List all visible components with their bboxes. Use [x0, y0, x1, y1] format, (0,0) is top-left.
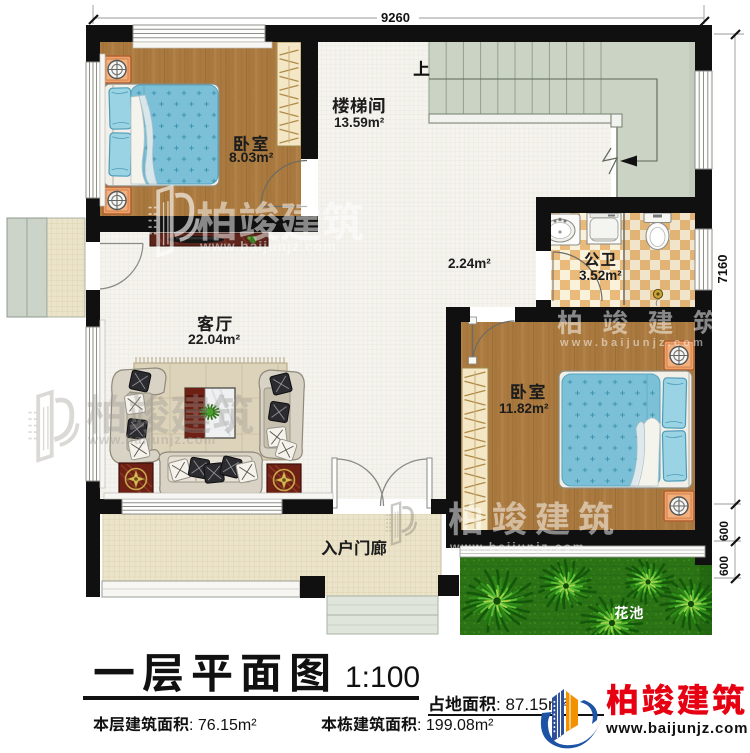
svg-text:www.baijunjz.com: www.baijunjz.com — [449, 540, 586, 554]
svg-text:11.82m²: 11.82m² — [499, 401, 549, 416]
svg-text:1:100: 1:100 — [345, 661, 420, 694]
svg-text:22.04m²: 22.04m² — [188, 331, 240, 347]
svg-text:www.baijunjz.com: www.baijunjz.com — [605, 720, 748, 737]
svg-text:13.59m²: 13.59m² — [334, 115, 385, 130]
svg-text:3.52m²: 3.52m² — [579, 268, 622, 283]
svg-text:www.baijunjz.com: www.baijunjz.com — [199, 238, 337, 254]
svg-text:www.baijunjz.com: www.baijunjz.com — [559, 337, 706, 349]
svg-text:www.baijunjz.com: www.baijunjz.com — [87, 432, 216, 447]
svg-text:2.24m²: 2.24m² — [448, 256, 491, 271]
svg-text:600: 600 — [717, 521, 731, 541]
svg-text:600: 600 — [717, 556, 731, 576]
svg-text:8.03m²: 8.03m² — [229, 149, 274, 165]
svg-text:: 76.15m²: : 76.15m² — [189, 717, 257, 734]
svg-text:9260: 9260 — [381, 10, 410, 25]
svg-text:7160: 7160 — [715, 255, 730, 284]
svg-text:: 199.08m²: : 199.08m² — [417, 717, 494, 734]
